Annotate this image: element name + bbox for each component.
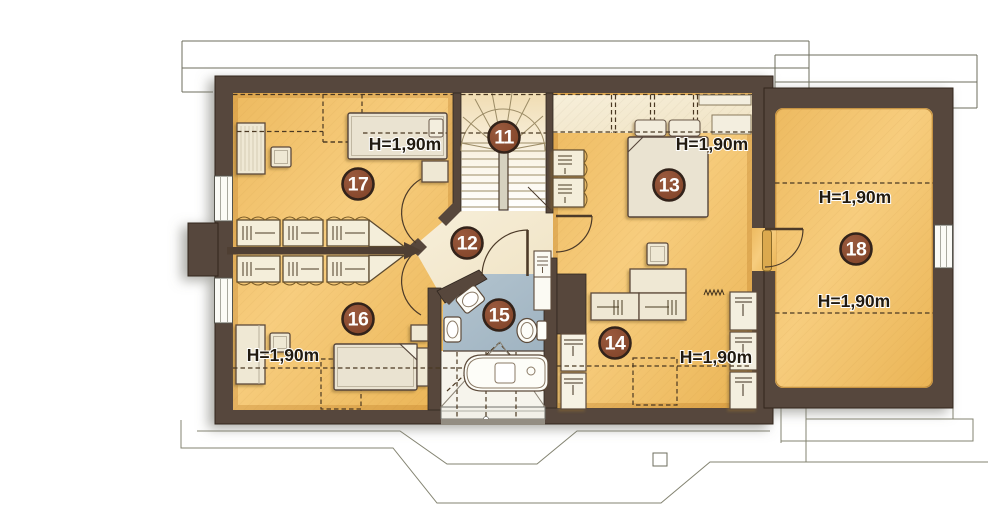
svg-text:11: 11 (494, 127, 514, 149)
svg-text:15: 15 (489, 305, 510, 327)
svg-text:H=1,90m: H=1,90m (247, 345, 319, 365)
svg-text:12: 12 (457, 233, 478, 255)
svg-text:16: 16 (348, 309, 369, 331)
svg-text:H=1,90m: H=1,90m (680, 347, 752, 367)
svg-text:14: 14 (605, 333, 626, 355)
svg-text:17: 17 (348, 174, 369, 196)
svg-text:H=1,90m: H=1,90m (819, 187, 891, 207)
svg-text:H=1,90m: H=1,90m (369, 134, 441, 154)
svg-text:H=1,90m: H=1,90m (818, 291, 890, 311)
svg-text:18: 18 (846, 239, 867, 261)
svg-text:H=1,90m: H=1,90m (676, 134, 748, 154)
svg-text:13: 13 (659, 175, 680, 197)
